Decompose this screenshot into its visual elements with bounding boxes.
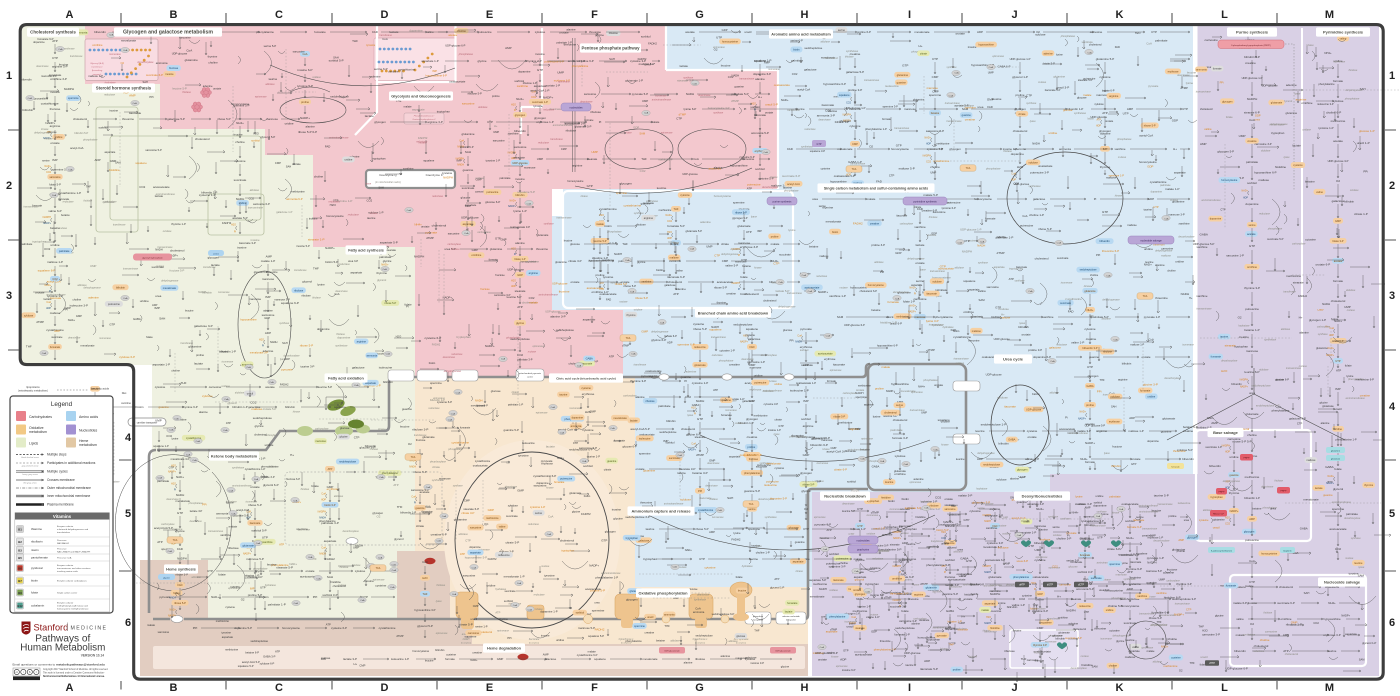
svg-text:deaminase: deaminase (36, 65, 49, 68)
svg-text:glycine: glycine (1275, 377, 1285, 381)
svg-text:xanthine: xanthine (1043, 315, 1054, 319)
svg-text:creatine: creatine (729, 362, 740, 366)
svg-text:ammonia 6-P: ammonia 6-P (286, 197, 302, 201)
svg-text:H2O: H2O (171, 482, 176, 485)
svg-text:aldolase: aldolase (728, 640, 738, 643)
svg-text:adenine: adenine (700, 220, 711, 224)
svg-text:cholesterol: cholesterol (893, 418, 908, 422)
svg-text:ribulose: ribulose (590, 110, 601, 114)
svg-text:B1: B1 (18, 527, 22, 531)
svg-text:CoA: CoA (763, 151, 768, 154)
svg-text:glutamine: glutamine (897, 73, 909, 77)
svg-text:Coenzyme II: Coenzyme II (426, 173, 443, 177)
svg-text:stearate: stearate (890, 542, 900, 546)
svg-text:3: 3 (1389, 290, 1395, 302)
svg-text:galactose: galactose (804, 67, 817, 71)
svg-text:malate: malate (404, 105, 412, 109)
svg-text:CoA: CoA (132, 102, 137, 105)
svg-text:homocysteine: homocysteine (1121, 604, 1140, 608)
svg-text:NH4+: NH4+ (1080, 457, 1088, 461)
svg-text:CoA: CoA (1113, 339, 1118, 342)
svg-text:lysine 6-P: lysine 6-P (684, 107, 697, 111)
svg-text:cysteine: cysteine (1293, 163, 1303, 167)
svg-text:succinate: succinate (1091, 576, 1103, 580)
svg-text:CoA: CoA (560, 431, 565, 434)
svg-text:CMP: CMP (473, 604, 479, 608)
svg-text:2: 2 (6, 180, 12, 192)
svg-text:lysine: lysine (733, 531, 741, 535)
svg-text:adenine: adenine (686, 369, 697, 373)
svg-text:proline: proline (1086, 403, 1094, 407)
svg-text:O2: O2 (241, 597, 245, 601)
svg-text:deaminase: deaminase (705, 485, 718, 488)
svg-text:hypoxanthine: hypoxanthine (240, 318, 257, 322)
svg-text:formate: formate (445, 657, 455, 661)
svg-text:lysine: lysine (317, 283, 325, 287)
svg-text:glutamate: glutamate (1322, 404, 1334, 408)
svg-text:citrate 3-P: citrate 3-P (461, 511, 474, 515)
svg-text:Inner mitochondrial membrane: Inner mitochondrial membrane (47, 494, 90, 498)
svg-text:cytosine: cytosine (970, 509, 981, 513)
svg-text:dopamine 6-P: dopamine 6-P (1033, 355, 1051, 359)
svg-text:threonine: threonine (640, 500, 652, 504)
svg-text:CO2: CO2 (1052, 565, 1058, 569)
svg-text:NADP+: NADP+ (1240, 386, 1249, 389)
svg-text:CoA: CoA (895, 297, 900, 300)
svg-text:valine: valine (1316, 190, 1323, 194)
svg-text:cystathionine: cystathionine (933, 159, 950, 163)
svg-text:TCA: TCA (173, 539, 178, 542)
svg-text:biotin 5-P: biotin 5-P (936, 528, 948, 532)
svg-text:H+: H+ (1299, 316, 1303, 320)
svg-text:IMP: IMP (457, 159, 462, 163)
svg-text:K: K (1116, 9, 1124, 21)
svg-text:mutase: mutase (44, 138, 53, 141)
svg-text:GTP: GTP (896, 144, 902, 148)
svg-text:aminotransferase: aminotransferase (232, 485, 252, 488)
svg-text:isoleucine: isoleucine (639, 436, 651, 440)
svg-text:uracil: uracil (745, 30, 752, 34)
svg-text:itaconate: itaconate (700, 496, 712, 500)
svg-text:sorbitol: sorbitol (1094, 501, 1103, 505)
svg-text:ammonia: ammonia (1196, 68, 1207, 72)
svg-text:CMP: CMP (275, 161, 281, 165)
svg-text:homocysteine: homocysteine (282, 626, 300, 630)
svg-text:biliverdin 1-P: biliverdin 1-P (400, 510, 416, 514)
svg-text:glycine: glycine (516, 321, 525, 325)
svg-text:mevalonate: mevalonate (613, 416, 627, 420)
svg-text:isoleucine: isoleucine (379, 365, 393, 369)
svg-text:biliverdin: biliverdin (1231, 382, 1242, 386)
svg-text:citrate: citrate (1018, 112, 1026, 116)
svg-text:lactate: lactate (916, 243, 925, 247)
svg-text:cystathionine 6-P: cystathionine 6-P (533, 474, 556, 478)
svg-text:free fatty acids: free fatty acids (91, 387, 110, 391)
svg-text:creatine: creatine (1086, 337, 1097, 341)
svg-text:creatine 6-P: creatine 6-P (922, 209, 938, 213)
svg-text:phenylalanine: phenylalanine (1013, 575, 1030, 579)
svg-text:synthase: synthase (1014, 280, 1025, 283)
svg-text:UDP-glucose: UDP-glucose (507, 267, 524, 271)
svg-text:sarcosine: sarcosine (470, 526, 482, 530)
svg-text:GABA: GABA (1300, 527, 1308, 531)
svg-text:biotin: biotin (137, 405, 144, 409)
svg-text:ADP: ADP (926, 143, 931, 146)
svg-text:synthase: synthase (1318, 333, 1329, 336)
svg-text:GMP: GMP (517, 489, 524, 493)
svg-text:glycogen: glycogen (1017, 468, 1028, 472)
svg-text:H2O: H2O (986, 616, 991, 619)
svg-text:transaminase: transaminase (23, 206, 39, 209)
svg-text:cysteine: cysteine (581, 386, 591, 390)
svg-text:carboxylase: carboxylase (161, 523, 175, 526)
svg-text:arginine: arginine (1118, 377, 1128, 381)
svg-text:taurine 3-P: taurine 3-P (301, 364, 315, 368)
svg-text:NAD+: NAD+ (170, 608, 177, 611)
svg-text:thiolase: thiolase (845, 56, 854, 59)
svg-text:tryptophan: tryptophan (626, 536, 639, 540)
svg-text:CO2: CO2 (1225, 523, 1231, 526)
svg-text:FADH2: FADH2 (638, 57, 647, 61)
svg-text:malate 5-P: malate 5-P (923, 193, 938, 197)
svg-text:inosine 3-P: inosine 3-P (751, 661, 765, 665)
svg-text:tryptophan: tryptophan (1210, 495, 1223, 499)
svg-text:dTMP: dTMP (731, 99, 739, 103)
svg-text:sorbitol: sorbitol (847, 480, 856, 484)
svg-text:squalene 6-P: squalene 6-P (281, 301, 299, 305)
svg-text:phosphatase: phosphatase (922, 379, 938, 382)
svg-text:putrescine 3-P: putrescine 3-P (1030, 170, 1049, 174)
svg-text:sarcosine: sarcosine (463, 574, 476, 578)
svg-text:maltose: maltose (1125, 655, 1136, 659)
svg-text:biotin: biotin (1032, 392, 1040, 396)
svg-text:aspartate: aspartate (104, 150, 115, 154)
svg-text:H2O: H2O (1202, 628, 1207, 632)
svg-text:CoA: CoA (186, 48, 192, 52)
svg-text:H+: H+ (494, 124, 498, 128)
svg-text:synthase: synthase (453, 484, 464, 487)
svg-text:CoA: CoA (354, 384, 359, 387)
svg-text:synthetase: synthetase (846, 50, 859, 53)
svg-text:oxidase: oxidase (735, 422, 744, 425)
svg-text:CoA: CoA (1119, 508, 1124, 511)
svg-text:guanine: guanine (1323, 493, 1333, 497)
svg-text:glycerol: glycerol (302, 280, 312, 284)
svg-text:tryptophan: tryptophan (865, 582, 879, 586)
svg-text:decarboxylase: decarboxylase (283, 355, 300, 358)
svg-text:SAM: SAM (979, 298, 986, 302)
svg-text:sarcosine: sarcosine (534, 484, 547, 488)
svg-text:spermine: spermine (929, 93, 942, 97)
svg-text:cytosine 3-P: cytosine 3-P (764, 402, 779, 406)
svg-text:AMP: AMP (129, 93, 136, 97)
svg-text:H2O: H2O (1221, 369, 1228, 373)
svg-text:THF: THF (397, 505, 403, 509)
svg-text:CO2: CO2 (1019, 597, 1025, 601)
svg-text:synthetase: synthetase (801, 146, 814, 149)
svg-text:epimerase: epimerase (433, 397, 445, 400)
svg-text:(in mitochondrial matrix): (in mitochondrial matrix) (375, 181, 401, 184)
svg-text:SAM: SAM (1358, 573, 1365, 577)
svg-text:synthase: synthase (683, 77, 694, 80)
svg-text:isomerase: isomerase (867, 514, 879, 517)
svg-text:H2O: H2O (253, 131, 258, 135)
svg-text:serine: serine (896, 403, 904, 407)
svg-text:sedoheptulose: sedoheptulose (733, 322, 752, 326)
svg-text:squalene: squalene (746, 327, 759, 331)
svg-text:betaine: betaine (931, 111, 940, 115)
svg-text:taurine: taurine (677, 471, 686, 475)
svg-text:itaconate: itaconate (833, 363, 845, 367)
svg-text:acetate: acetate (419, 490, 429, 494)
svg-text:malate: malate (981, 608, 989, 612)
svg-text:aspartate 5-P: aspartate 5-P (380, 240, 398, 244)
svg-text:choline: choline (314, 174, 324, 178)
svg-text:acetate 1-P: acetate 1-P (545, 83, 560, 87)
svg-text:lyase: lyase (1294, 92, 1301, 95)
svg-text:stearate: stearate (919, 618, 930, 622)
svg-text:spermine 5-P: spermine 5-P (233, 104, 250, 108)
svg-text:isoleucine: isoleucine (522, 441, 535, 445)
svg-text:thiolase: thiolase (83, 200, 92, 203)
svg-text:sedoheptulose: sedoheptulose (1251, 384, 1271, 388)
svg-text:uridine: uridine (50, 243, 59, 247)
svg-text:NADPH: NADPH (893, 565, 902, 568)
svg-text:fumarate: fumarate (1226, 584, 1237, 588)
svg-text:CoA: CoA (390, 586, 395, 589)
svg-text:carrier: carrier (527, 375, 533, 378)
svg-text:NH4+: NH4+ (1036, 507, 1044, 511)
svg-text:UMP: UMP (1344, 305, 1351, 309)
svg-text:adenine: adenine (1043, 51, 1053, 55)
svg-text:betaine: betaine (1252, 507, 1262, 511)
svg-text:isomerase: isomerase (845, 620, 857, 623)
svg-text:SAH: SAH (609, 57, 615, 61)
svg-text:CoA: CoA (778, 281, 783, 284)
svg-text:H+: H+ (1189, 296, 1193, 300)
svg-text:metabolism: metabolism (29, 430, 47, 434)
svg-text:Oxidative phosphorylation: Oxidative phosphorylation (638, 590, 688, 595)
svg-text:FADH2: FADH2 (595, 628, 605, 632)
svg-text:NAD+: NAD+ (1242, 189, 1249, 192)
svg-text:CoA: CoA (989, 66, 994, 69)
svg-text:aminotransferase: aminotransferase (1332, 501, 1352, 504)
svg-text:CoA: CoA (256, 542, 261, 545)
svg-text:thiolase: thiolase (340, 566, 349, 569)
svg-text:SAH: SAH (727, 496, 733, 500)
svg-text:glutamate: glutamate (988, 575, 1002, 579)
svg-text:galactose: galactose (745, 656, 757, 660)
svg-text:transporter: transporter (786, 619, 796, 622)
svg-text:xylulose 3-P: xylulose 3-P (970, 582, 985, 586)
svg-text:mutase: mutase (59, 227, 68, 230)
svg-text:cytosine 1-P: cytosine 1-P (719, 349, 735, 353)
svg-text:leucine: leucine (885, 480, 894, 484)
svg-text:uridine: uridine (1106, 608, 1114, 612)
svg-text:carboxylase: carboxylase (623, 395, 637, 398)
svg-text:aspartate: aspartate (465, 203, 477, 207)
svg-text:tryptophan: tryptophan (903, 527, 917, 531)
svg-text:taurine: taurine (646, 527, 655, 531)
svg-text:sedoheptulose: sedoheptulose (339, 460, 356, 464)
svg-text:ribulose: ribulose (695, 657, 706, 661)
svg-text:tryptophan: tryptophan (1234, 345, 1248, 349)
svg-text:spermine 6-P: spermine 6-P (1118, 552, 1135, 556)
svg-text:oxaloacetate 3-P: oxaloacetate 3-P (510, 225, 530, 229)
svg-text:folate: folate (1345, 364, 1352, 368)
svg-text:lyase: lyase (1029, 120, 1036, 123)
svg-text:aminotransferase: aminotransferase (1069, 432, 1089, 435)
svg-text:ADP: ADP (1127, 587, 1133, 591)
svg-text:ATP: ATP (747, 186, 752, 190)
svg-text:hydratase: hydratase (1238, 325, 1250, 328)
svg-text:J: J (1011, 9, 1017, 21)
svg-text:H: H (801, 682, 809, 694)
svg-text:isomerase: isomerase (218, 291, 230, 294)
svg-text:ribulose: ribulose (999, 307, 1010, 311)
svg-text:cytosine: cytosine (680, 193, 690, 197)
svg-text:lysine 6-P: lysine 6-P (476, 404, 488, 408)
svg-text:isoleucine: isoleucine (764, 483, 777, 487)
svg-text:UMP: UMP (1239, 134, 1246, 138)
svg-text:citrate 5-P: citrate 5-P (459, 623, 473, 627)
svg-text:adenine: adenine (1286, 83, 1297, 87)
svg-text:maltose: maltose (251, 407, 262, 411)
svg-text:valine: valine (1340, 37, 1347, 41)
svg-text:NAD+: NAD+ (910, 304, 917, 307)
svg-text:valine: valine (1236, 617, 1244, 621)
svg-text:CoA: CoA (448, 418, 453, 421)
svg-text:tyrosine: tyrosine (221, 631, 231, 635)
svg-text:biotin: biotin (31, 579, 38, 583)
svg-text:acetyl-CoA: acetyl-CoA (1139, 134, 1153, 138)
svg-text:urea: urea (1184, 518, 1190, 522)
svg-text:FADH2: FADH2 (488, 557, 497, 561)
svg-text:bilirubin: bilirubin (116, 285, 125, 289)
svg-text:fumarate: fumarate (1171, 465, 1180, 468)
svg-text:PPi: PPi (507, 636, 512, 640)
svg-text:CoA: CoA (690, 248, 695, 251)
svg-text:dTMP: dTMP (396, 634, 403, 638)
svg-text:aspartate: aspartate (324, 539, 337, 543)
svg-text:cysteine: cysteine (375, 584, 386, 588)
svg-text:ornithine 1-P: ornithine 1-P (591, 290, 608, 294)
svg-text:CMP: CMP (932, 75, 939, 79)
svg-text:pyruvate 1-P: pyruvate 1-P (1144, 315, 1160, 319)
svg-text:dehydrogenase: dehydrogenase (907, 258, 925, 261)
svg-text:ribose 5-P: ribose 5-P (1144, 124, 1156, 128)
svg-text:uridine: uridine (1334, 427, 1342, 431)
svg-text:lactate: lactate (44, 297, 52, 301)
svg-text:transaminase: transaminase (954, 358, 970, 361)
svg-text:SAM: SAM (1092, 665, 1099, 669)
svg-text:H2O: H2O (422, 576, 427, 580)
svg-text:orotate: orotate (213, 87, 222, 91)
svg-text:CoA: CoA (246, 366, 251, 369)
svg-text:alanine: alanine (684, 661, 693, 665)
svg-text:proline 3-P: proline 3-P (1028, 348, 1042, 352)
svg-text:NADPH: NADPH (414, 255, 425, 259)
svg-text:histidine: histidine (331, 580, 342, 584)
svg-text:uridine: uridine (140, 299, 149, 303)
svg-text:acetoacetate: acetoacetate (587, 286, 604, 290)
svg-text:proline: proline (747, 445, 755, 449)
svg-text:CoA: CoA (231, 513, 236, 516)
svg-text:biotin 3-P: biotin 3-P (1044, 62, 1056, 66)
svg-text:isomerase: isomerase (99, 337, 111, 340)
svg-text:Pi: Pi (1094, 197, 1097, 201)
svg-text:E: E (486, 9, 493, 21)
svg-text:GMP: GMP (1291, 620, 1298, 624)
svg-text:ribulose: ribulose (636, 222, 646, 226)
svg-text:aspartate: aspartate (1345, 632, 1357, 636)
svg-text:CoA: CoA (224, 398, 229, 401)
svg-text:guanine: guanine (962, 113, 972, 117)
svg-text:UDP-glucuronate: UDP-glucuronate (775, 650, 791, 653)
svg-text:lyase: lyase (435, 600, 442, 603)
svg-text:pyruvate: pyruvate (882, 533, 893, 537)
svg-text:inosine: inosine (541, 634, 550, 638)
svg-text:biliverdin: biliverdin (1182, 457, 1194, 461)
svg-text:purine synthesis: purine synthesis (773, 200, 792, 204)
svg-text:urea: urea (978, 105, 984, 109)
svg-text:lysine 3-P: lysine 3-P (926, 319, 939, 323)
svg-text:CoA: CoA (644, 112, 649, 115)
svg-text:L: L (1221, 682, 1228, 694)
svg-text:carnosine: carnosine (1265, 629, 1278, 633)
svg-text:proline: proline (953, 668, 961, 672)
svg-text:transferase: transferase (294, 269, 307, 272)
svg-text:NADPH: NADPH (1247, 97, 1258, 101)
svg-text:inosine: inosine (535, 52, 545, 56)
svg-text:UDP-glucose 1-P: UDP-glucose 1-P (1242, 76, 1263, 80)
svg-text:synthase: synthase (1351, 537, 1362, 540)
svg-text:CTP: CTP (849, 532, 855, 536)
svg-text:malate 6-P: malate 6-P (1233, 601, 1247, 605)
svg-text:synthase: synthase (947, 66, 958, 69)
svg-text:dopamine: dopamine (791, 434, 804, 438)
svg-text:aldolase: aldolase (955, 266, 965, 269)
svg-text:fructose: fructose (749, 457, 759, 461)
svg-text:choline: choline (930, 165, 940, 169)
svg-text:serine: serine (42, 158, 50, 162)
svg-text:folate: folate (218, 573, 226, 577)
svg-text:urea: urea (155, 294, 161, 298)
svg-text:homocysteine 6-P: homocysteine 6-P (426, 74, 448, 78)
svg-text:black dashed arrow: black dashed arrow (21, 457, 39, 459)
svg-text:CTP: CTP (52, 56, 58, 60)
svg-text:itaconate: itaconate (129, 111, 142, 115)
svg-text:malate: malate (596, 222, 604, 226)
svg-text:cystathionine: cystathionine (451, 440, 469, 444)
svg-text:CoA: CoA (442, 515, 447, 518)
svg-text:cholesterol: cholesterol (560, 539, 575, 543)
svg-text:FADH2: FADH2 (648, 41, 657, 45)
svg-text:deaminase: deaminase (842, 502, 855, 505)
svg-text:transferase: transferase (877, 550, 890, 553)
svg-text:ATP: ATP (774, 577, 779, 581)
svg-text:MEDICINE: MEDICINE (71, 625, 108, 631)
svg-text:dehydrogenase: dehydrogenase (34, 132, 52, 135)
svg-text:hydratase: hydratase (943, 326, 955, 329)
svg-text:niacin: niacin (31, 548, 39, 552)
svg-text:acetate: acetate (265, 385, 275, 389)
svg-text:CTP: CTP (676, 117, 682, 121)
svg-text:NADP+: NADP+ (1326, 354, 1335, 357)
svg-text:GMP: GMP (641, 330, 648, 334)
svg-text:transaminase: transaminase (739, 77, 755, 80)
svg-text:itaconate: itaconate (1004, 405, 1016, 409)
